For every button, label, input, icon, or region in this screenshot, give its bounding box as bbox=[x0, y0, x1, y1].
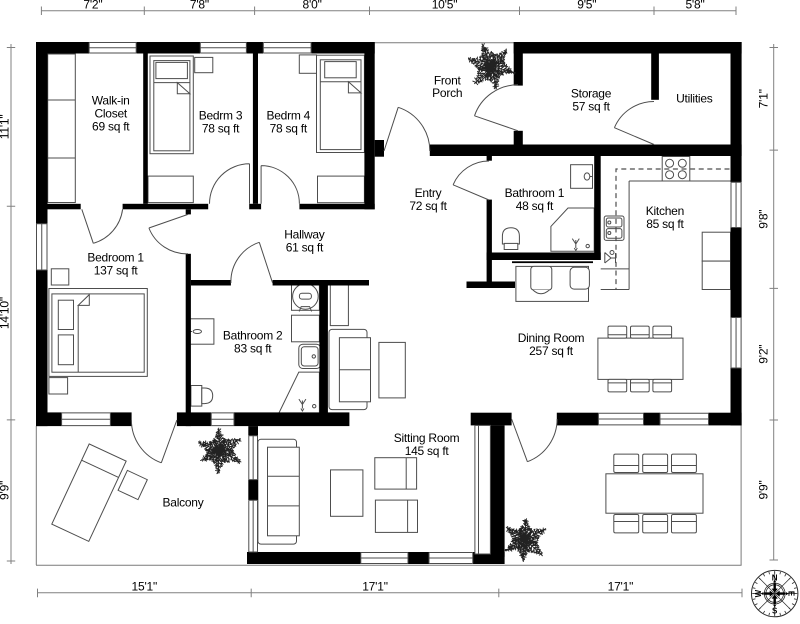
svg-text:Hallway61 sq ft: Hallway61 sq ft bbox=[284, 228, 325, 255]
svg-text:10'5": 10'5" bbox=[432, 0, 458, 12]
svg-text:E: E bbox=[787, 591, 796, 597]
svg-text:15'1": 15'1" bbox=[132, 579, 158, 593]
svg-text:N: N bbox=[772, 573, 778, 582]
svg-text:Bedrm 378 sq ft: Bedrm 378 sq ft bbox=[199, 109, 243, 136]
svg-text:9'5": 9'5" bbox=[577, 0, 596, 12]
svg-text:9'2": 9'2" bbox=[757, 345, 771, 364]
svg-text:8'0": 8'0" bbox=[303, 0, 322, 12]
svg-text:Storage57 sq ft: Storage57 sq ft bbox=[571, 87, 612, 114]
svg-text:17'1": 17'1" bbox=[362, 579, 388, 593]
svg-text:W: W bbox=[754, 589, 763, 597]
svg-text:9'9": 9'9" bbox=[0, 481, 12, 500]
svg-text:14'10": 14'10" bbox=[0, 297, 12, 329]
svg-text:S: S bbox=[772, 606, 778, 615]
svg-text:Utilities: Utilities bbox=[676, 91, 713, 105]
svg-text:Bedrm 478 sq ft: Bedrm 478 sq ft bbox=[266, 109, 310, 136]
svg-text:17'1": 17'1" bbox=[608, 579, 634, 593]
svg-text:5'8": 5'8" bbox=[685, 0, 704, 12]
svg-text:7'8": 7'8" bbox=[190, 0, 209, 12]
svg-text:Balcony: Balcony bbox=[163, 496, 204, 510]
svg-text:11'1": 11'1" bbox=[0, 115, 12, 140]
svg-text:Walk-inCloset69 sq ft: Walk-inCloset69 sq ft bbox=[92, 94, 131, 134]
svg-text:9'9": 9'9" bbox=[757, 480, 771, 499]
svg-text:Kitchen85 sq ft: Kitchen85 sq ft bbox=[646, 204, 685, 231]
svg-text:7'2": 7'2" bbox=[83, 0, 102, 12]
svg-text:7'1": 7'1" bbox=[757, 89, 771, 108]
svg-text:FrontPorch: FrontPorch bbox=[432, 73, 462, 100]
svg-text:Bedroom 1137 sq ft: Bedroom 1137 sq ft bbox=[87, 251, 144, 278]
svg-text:9'8": 9'8" bbox=[757, 210, 771, 229]
